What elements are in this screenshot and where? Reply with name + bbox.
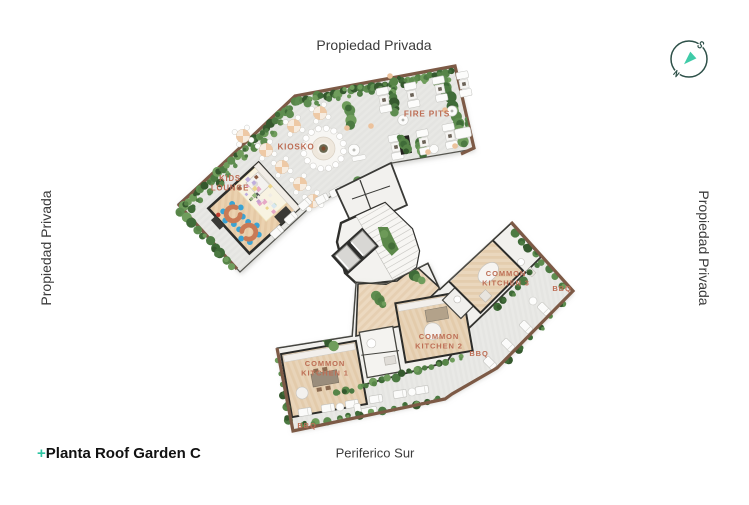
svg-text:BBQ: BBQ — [469, 349, 488, 358]
svg-text:LOUNGE: LOUNGE — [211, 184, 249, 193]
svg-text:KIOSKO: KIOSKO — [277, 143, 314, 152]
svg-text:KITCHEN 1: KITCHEN 1 — [301, 369, 349, 378]
svg-text:BBQ: BBQ — [552, 284, 571, 293]
svg-text:KIDS: KIDS — [219, 174, 241, 183]
svg-text:FIRE PITS: FIRE PITS — [404, 110, 450, 119]
svg-text:KITCHEN 3: KITCHEN 3 — [482, 279, 530, 288]
svg-text:COMMON: COMMON — [486, 269, 526, 278]
svg-text:KITCHEN 2: KITCHEN 2 — [415, 342, 463, 351]
svg-text:COMMON: COMMON — [305, 359, 345, 368]
svg-text:BBQ: BBQ — [297, 421, 316, 430]
svg-text:COMMON: COMMON — [419, 332, 459, 341]
